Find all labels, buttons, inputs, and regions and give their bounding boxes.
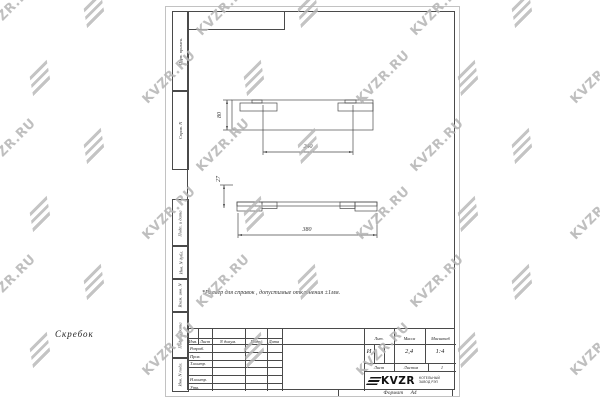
front-view-blade [237, 202, 377, 206]
sheets-value: 1 [441, 365, 443, 370]
watermark-logo-icon [30, 332, 51, 369]
watermark-logo-icon [84, 264, 105, 301]
sheets-label: Листов [404, 365, 418, 370]
col-izm: Изм. [189, 339, 198, 344]
dim-height-front-view: 27 [216, 175, 222, 182]
scale-label: Масштаб [431, 336, 450, 341]
part-title: Скребок [55, 329, 321, 339]
col-list: Лист [200, 339, 210, 344]
watermark-text: KVZR.RU [568, 184, 600, 243]
watermark-text: KVZR.RU [568, 320, 600, 379]
format-label: Формат А4 [352, 390, 448, 396]
company-cell: KVZR КОТЕЛЬНЫЙ ЗАВОД РЭП [366, 371, 456, 391]
watermark-text: KVZR.RU [0, 0, 39, 39]
scale-value: 1:4 [436, 348, 445, 355]
top-view: 80 240 [205, 93, 390, 163]
watermark-logo-icon [84, 128, 105, 165]
watermark-text: KVZR.RU [568, 48, 600, 107]
format-divider [338, 390, 339, 396]
margin-column-box: Подп. и дата [172, 199, 189, 247]
front-view: 27 380 [205, 168, 390, 243]
dim-length-front-view: 380 [302, 227, 312, 233]
company-name: KVZR [381, 375, 415, 387]
signature-row-label: Т.контр. [190, 361, 206, 366]
format-divider [452, 390, 453, 396]
lit-label: Лит. [374, 336, 384, 341]
signature-row-label: Разраб. [190, 346, 204, 351]
kvzr-logo-icon [365, 377, 381, 386]
signature-row-label: Утв. [190, 385, 199, 390]
mass-label: Масса [404, 336, 416, 341]
watermark-logo-icon [512, 264, 533, 301]
mass-value: 2,4 [405, 348, 413, 355]
top-designation-box [187, 11, 285, 30]
margin-column-box: Взам. инв. N [172, 278, 189, 313]
margin-column-label: Взам. инв. N [178, 283, 183, 307]
title-block: Изм. Лист N докум. Подп. Дата Разраб.Про… [187, 328, 455, 390]
margin-column-label: Справ. N [178, 121, 183, 138]
col-data: Дата [269, 339, 279, 344]
watermark-logo-icon [512, 128, 533, 165]
reference-note: *Размер для справок , допустимые отклоне… [202, 290, 340, 296]
dim-height-top-view: 80 [217, 112, 223, 118]
margin-column-box: Инв. N дубл. [172, 245, 189, 280]
dim-length-top-view: 240 [304, 143, 313, 150]
watermark-logo-icon [458, 60, 479, 97]
signature-row-label: Пров. [190, 354, 201, 359]
watermark-logo-icon [30, 196, 51, 233]
drawing-page: KVZR.RUKVZR.RUKVZR.RUKVZR.RUKVZR.RUKVZR.… [0, 0, 600, 400]
margin-column-label: Инв. N подл. [178, 362, 183, 386]
margin-column-label: Перв. примен. [178, 38, 183, 65]
watermark-logo-icon [458, 196, 479, 233]
margin-column-box: Перв. примен. [172, 11, 189, 92]
margin-column-label: Подп. и дата [178, 210, 183, 236]
signature-row-label: Н.контр. [190, 377, 207, 382]
sheet-label: Лист [374, 365, 384, 370]
col-podp: Подп. [251, 339, 262, 344]
lit-value: И [367, 348, 372, 355]
company-subtitle: КОТЕЛЬНЫЙ ЗАВОД РЭП [419, 377, 440, 385]
margin-column-label: Инв. N дубл. [178, 251, 183, 275]
watermark-logo-icon [512, 0, 533, 29]
watermark-text: KVZR.RU [0, 252, 39, 311]
col-ndoc: N докум. [220, 339, 236, 344]
watermark-text: KVZR.RU [0, 116, 39, 175]
watermark-logo-icon [458, 332, 479, 369]
watermark-logo-icon [84, 0, 105, 29]
watermark-logo-icon [30, 60, 51, 97]
margin-column-box: Справ. N [172, 90, 189, 170]
top-view-body [232, 100, 373, 130]
